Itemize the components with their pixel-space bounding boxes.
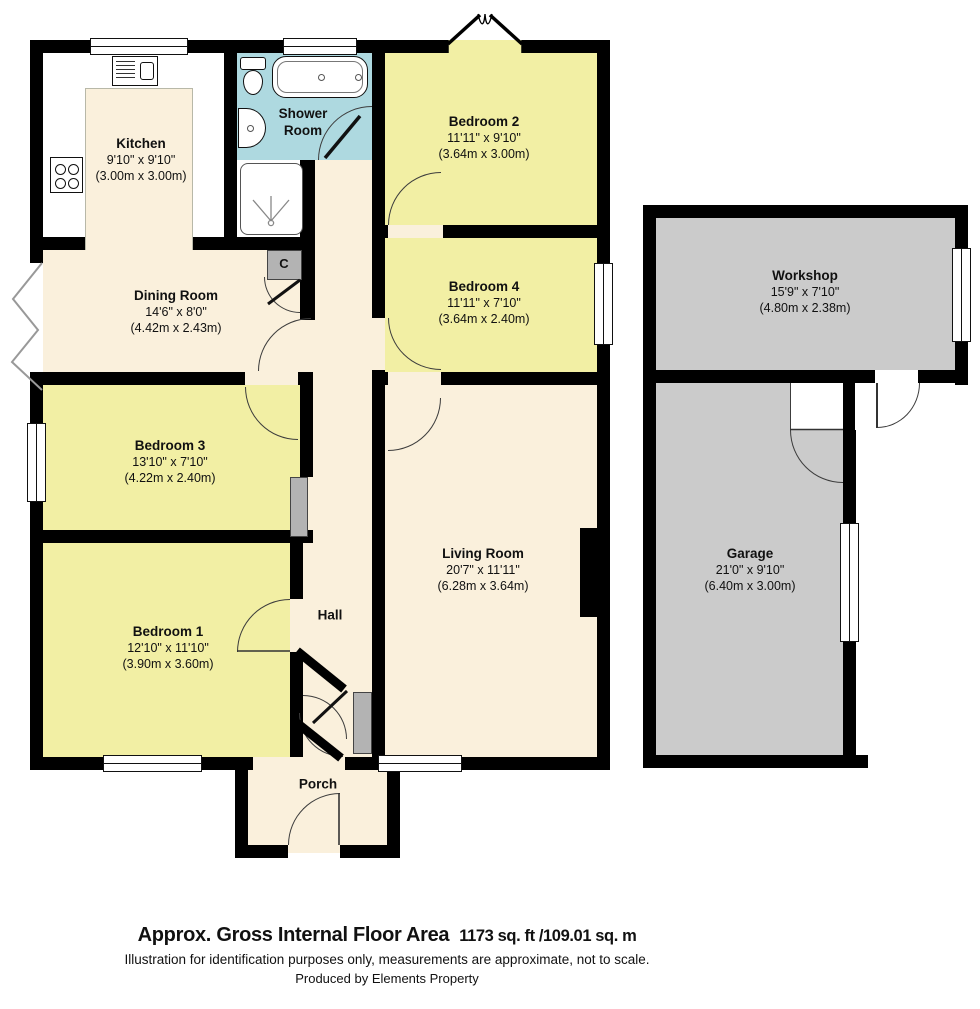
wall xyxy=(290,652,303,757)
wall xyxy=(340,845,400,858)
room-label-bedroom1: Bedroom 1 12'10" x 11'10" (3.90m x 3.60m… xyxy=(122,624,213,672)
room-name: Porch xyxy=(299,777,337,794)
bay-window-gap xyxy=(448,40,522,53)
room-name: Bedroom 3 xyxy=(124,438,215,455)
wall xyxy=(597,40,610,770)
wall xyxy=(372,372,388,385)
chimney-breast xyxy=(580,528,610,617)
room-name: Bedroom 1 xyxy=(122,624,213,641)
wall xyxy=(643,205,968,218)
room-label-workshop: Workshop 15'9" x 7'10" (4.80m x 2.38m) xyxy=(759,268,850,316)
wall xyxy=(30,40,43,770)
window xyxy=(952,248,971,342)
floor-area-value: 1173 sq. ft /109.01 sq. m xyxy=(459,927,636,945)
window xyxy=(103,755,202,772)
burner-icon xyxy=(68,164,79,175)
porch-entry-gap xyxy=(253,757,345,770)
window xyxy=(283,38,357,55)
room-dims-metric: (3.90m x 3.60m) xyxy=(122,656,213,672)
room-name: Bedroom 2 xyxy=(438,114,529,131)
hob-icon xyxy=(50,157,83,193)
room-name: Garage xyxy=(704,546,795,563)
room-dims-metric: (3.64m x 2.40m) xyxy=(438,311,529,327)
room-dims-metric: (3.00m x 3.00m) xyxy=(95,168,186,184)
wall xyxy=(918,370,968,383)
wall xyxy=(372,385,385,757)
room-dims-imperial: 11'11" x 9'10" xyxy=(438,131,529,147)
room-name: C xyxy=(279,256,288,272)
window xyxy=(840,523,859,642)
wall xyxy=(443,225,610,238)
door-arc xyxy=(877,383,920,428)
sink-bowl-icon xyxy=(140,62,154,80)
room-dims-imperial: 21'0" x 9'10" xyxy=(704,563,795,579)
wall xyxy=(372,40,385,318)
toilet-cistern-icon xyxy=(240,57,266,70)
disclaimer-text: Illustration for identification purposes… xyxy=(30,952,744,967)
wall xyxy=(643,205,656,768)
wall xyxy=(843,640,856,755)
room-label-bedroom2: Bedroom 2 11'11" x 9'10" (3.64m x 3.00m) xyxy=(438,114,529,162)
room-dims-metric: (4.22m x 2.40m) xyxy=(124,470,215,486)
window xyxy=(378,755,462,772)
wall xyxy=(441,372,610,385)
room-label-living: Living Room 20'7" x 11'11" (6.28m x 3.64… xyxy=(437,546,528,594)
room-name: Living Room xyxy=(437,546,528,563)
room-label-dining: Dining Room 14'6" x 8'0" (4.42m x 2.43m) xyxy=(130,288,221,336)
room-name: Hall xyxy=(318,608,343,625)
label-cupboard: C xyxy=(279,256,288,272)
shower-tray-icon xyxy=(240,163,303,235)
basin-drain-icon xyxy=(247,125,254,132)
dining-open-wall-gap xyxy=(30,263,43,372)
room-label-bedroom4: Bedroom 4 11'11" x 7'10" (3.64m x 2.40m) xyxy=(438,279,529,327)
bath-drain-icon xyxy=(318,74,325,81)
room-dims-imperial: 11'11" x 7'10" xyxy=(438,296,529,312)
room-dims-imperial: 20'7" x 11'11" xyxy=(437,563,528,579)
wall xyxy=(235,757,248,858)
bathtub-icon xyxy=(272,56,368,98)
floor-area-title: Approx. Gross Internal Floor Area xyxy=(138,924,450,946)
room-dims-imperial: 14'6" x 8'0" xyxy=(130,305,221,321)
bath-tap-icon xyxy=(355,74,362,81)
drainer-icon xyxy=(116,61,135,81)
room-dims-metric: (3.64m x 3.00m) xyxy=(438,146,529,162)
window xyxy=(594,263,613,345)
wall xyxy=(30,372,245,385)
wall xyxy=(387,757,400,858)
wall xyxy=(643,755,868,768)
wall xyxy=(372,225,388,238)
wall xyxy=(300,385,313,477)
room-name: Kitchen xyxy=(95,136,186,153)
window xyxy=(90,38,188,55)
burner-icon xyxy=(68,178,79,189)
wall xyxy=(30,237,85,250)
label-hall: Hall xyxy=(318,608,343,625)
room-dims-imperial: 9'10" x 9'10" xyxy=(95,153,186,169)
wall xyxy=(235,845,288,858)
footer: Approx. Gross Internal Floor Area1173 sq… xyxy=(30,924,744,986)
wall xyxy=(224,40,237,250)
wall xyxy=(290,543,303,599)
room-dims-metric: (6.28m x 3.64m) xyxy=(437,578,528,594)
room-label-shower: Shower Room xyxy=(263,106,343,140)
wall xyxy=(643,370,875,383)
wall xyxy=(193,237,224,250)
wall xyxy=(298,372,313,385)
room-name: Workshop xyxy=(759,268,850,285)
room-name: Shower Room xyxy=(263,106,343,140)
room-label-kitchen: Kitchen 9'10" x 9'10" (3.00m x 3.00m) xyxy=(95,136,186,184)
floor-plan: Kitchen 9'10" x 9'10" (3.00m x 3.00m) Sh… xyxy=(0,0,980,1009)
room-dims-metric: (6.40m x 3.00m) xyxy=(704,578,795,594)
room-dims-imperial: 15'9" x 7'10" xyxy=(759,285,850,301)
room-dims-metric: (4.80m x 2.38m) xyxy=(759,300,850,316)
producer-text: Produced by Elements Property xyxy=(30,971,744,986)
wall xyxy=(843,383,855,430)
bay-window-curl-icon xyxy=(478,14,492,24)
cupboard xyxy=(353,692,372,754)
floor-area-title-line: Approx. Gross Internal Floor Area1173 sq… xyxy=(30,924,744,947)
sink-unit-icon xyxy=(112,56,158,86)
burner-icon xyxy=(55,178,66,189)
wall xyxy=(30,530,313,543)
cupboard xyxy=(290,477,308,537)
room-label-garage: Garage 21'0" x 9'10" (6.40m x 3.00m) xyxy=(704,546,795,594)
burner-icon xyxy=(55,164,66,175)
label-porch: Porch xyxy=(299,777,337,794)
window xyxy=(27,423,46,502)
room-name: Bedroom 4 xyxy=(438,279,529,296)
room-label-bedroom3: Bedroom 3 13'10" x 7'10" (4.22m x 2.40m) xyxy=(124,438,215,486)
room-dims-imperial: 13'10" x 7'10" xyxy=(124,455,215,471)
wall xyxy=(843,430,856,525)
room-dims-metric: (4.42m x 2.43m) xyxy=(130,320,221,336)
garage-entry-recess xyxy=(790,383,843,430)
room-dims-imperial: 12'10" x 11'10" xyxy=(122,641,213,657)
room-name: Dining Room xyxy=(130,288,221,305)
